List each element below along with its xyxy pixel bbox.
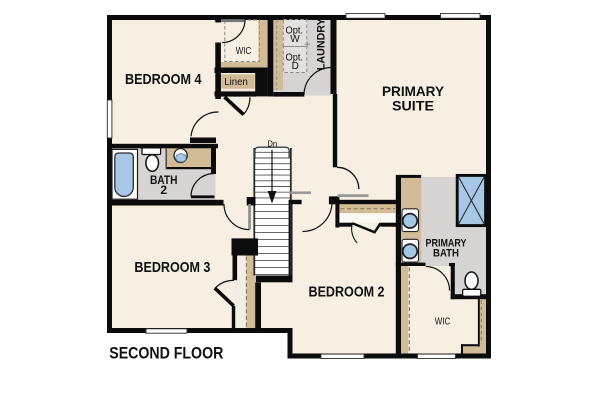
svg-text:BEDROOM 4: BEDROOM 4 [125, 71, 202, 88]
svg-text:LAUNDRY: LAUNDRY [316, 18, 328, 71]
svg-text:D: D [292, 61, 299, 72]
svg-text:Linen: Linen [224, 77, 248, 88]
svg-text:Dn: Dn [267, 138, 277, 148]
svg-text:BEDROOM 2: BEDROOM 2 [309, 283, 385, 300]
svg-text:BATH: BATH [433, 248, 459, 260]
svg-text:WIC: WIC [236, 46, 252, 57]
svg-text:SECOND FLOOR: SECOND FLOOR [109, 344, 223, 363]
svg-text:2: 2 [160, 183, 167, 197]
svg-text:BEDROOM 3: BEDROOM 3 [134, 259, 210, 276]
svg-text:SUITE: SUITE [392, 98, 434, 114]
svg-text:W: W [290, 34, 300, 45]
svg-text:WIC: WIC [435, 317, 451, 328]
